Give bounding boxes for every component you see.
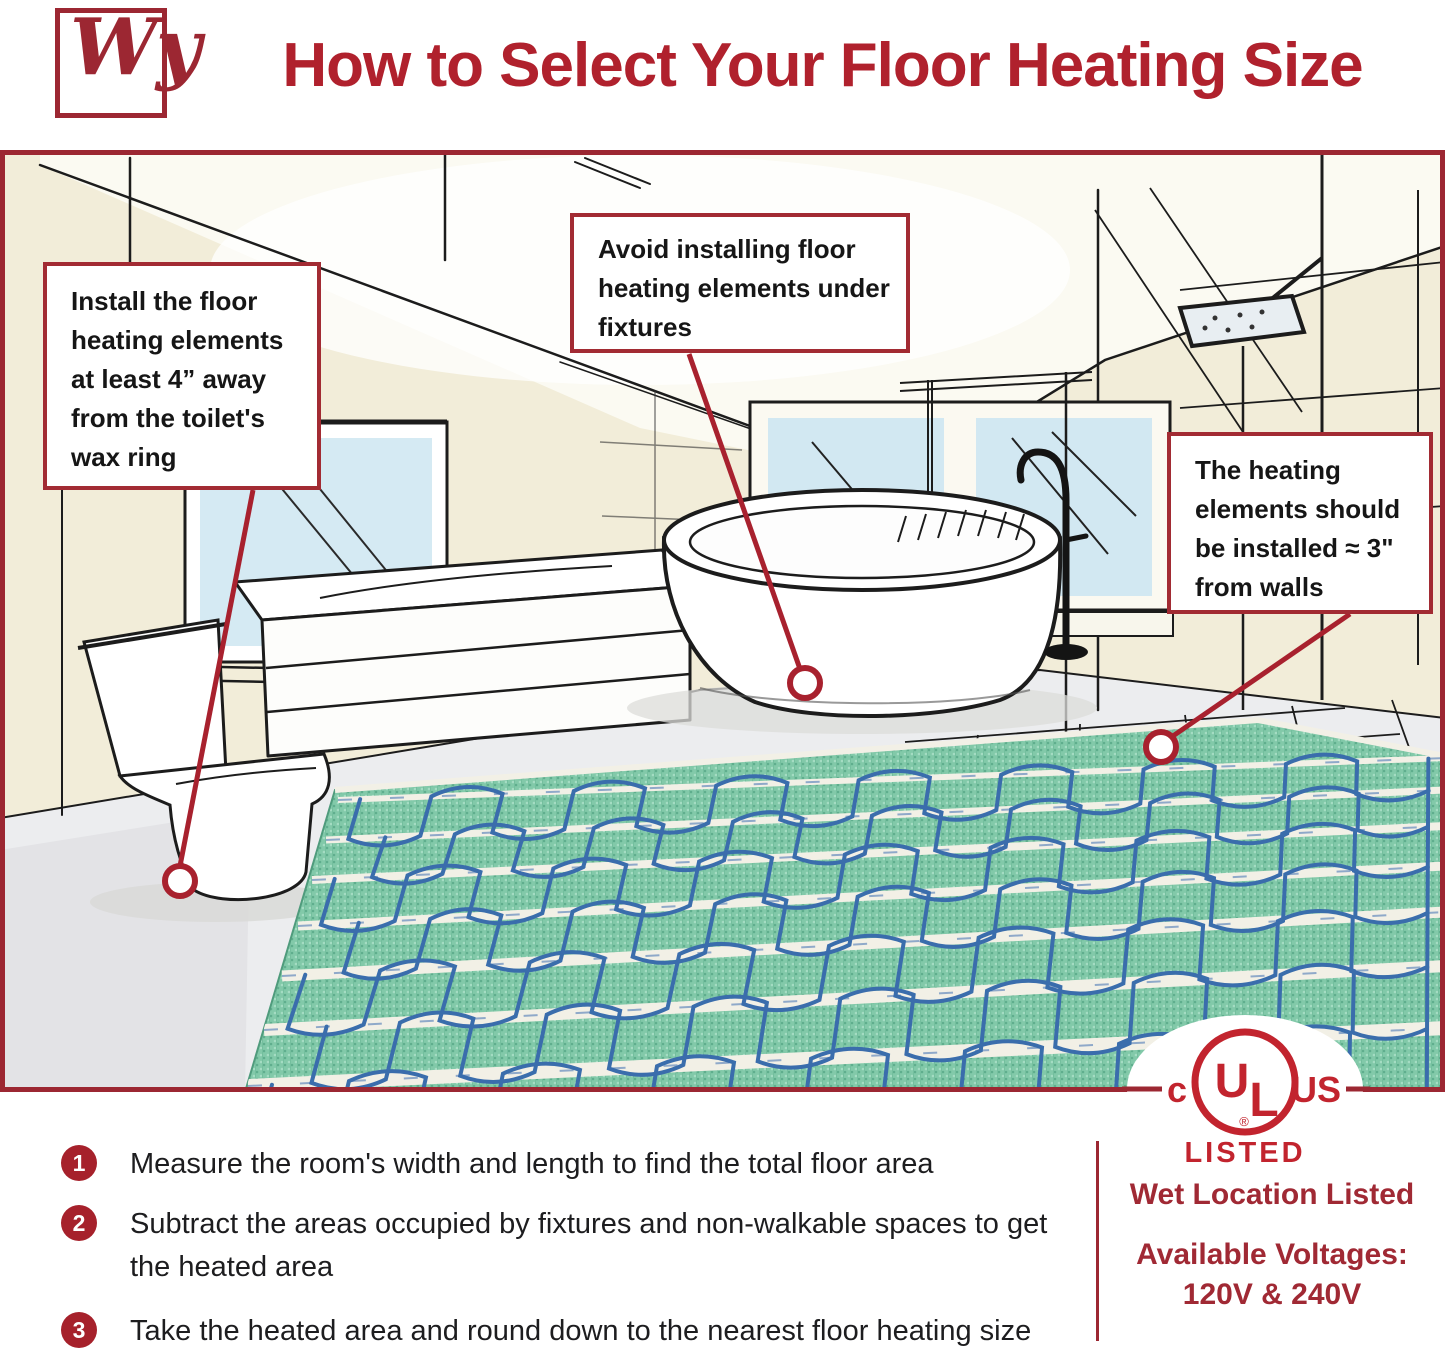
step-item-1: 1 Measure the room's width and length to…	[61, 1143, 1091, 1186]
leader-dot-tub	[790, 668, 820, 698]
callout-toilet: Install the floor heating elements at le…	[43, 262, 321, 490]
step-text: Take the heated area and round down to t…	[130, 1310, 1091, 1348]
ul-letter-l: L	[1249, 1074, 1278, 1127]
callout-fixtures: Avoid installing floor heating elements …	[570, 213, 910, 353]
step-item-2: 2 Subtract the areas occupied by fixture…	[61, 1203, 1091, 1289]
step-number-badge: 2	[61, 1205, 97, 1241]
voltages-value: 120V & 240V	[1104, 1278, 1440, 1312]
callout-walls: The heating elements should be installed…	[1167, 432, 1433, 614]
wet-location-label: Wet Location Listed	[1104, 1178, 1440, 1212]
page-title: How to Select Your Floor Heating Size	[215, 30, 1430, 101]
step-number-badge: 3	[61, 1312, 97, 1348]
infographic-page: Wy How to Select Your Floor Heating Size	[0, 0, 1445, 1348]
brand-logo: Wy	[55, 8, 167, 118]
ul-letter-u: U	[1215, 1055, 1250, 1108]
certification-info: Wet Location Listed Available Voltages: …	[1104, 1178, 1440, 1312]
leader-dot-wall	[1146, 732, 1176, 762]
ul-us-label: US	[1291, 1069, 1341, 1110]
ul-registered-icon: ®	[1239, 1114, 1249, 1129]
brand-logo-monogram: Wy	[70, 9, 201, 87]
bathtub-sketch	[627, 490, 1097, 734]
step-text: Measure the room's width and length to f…	[130, 1143, 1091, 1186]
vertical-divider	[1096, 1141, 1099, 1341]
step-number-badge: 1	[61, 1145, 97, 1181]
bench-sketch	[235, 550, 690, 756]
ul-listed-label: LISTED	[1184, 1137, 1305, 1169]
ul-c-label: c	[1167, 1069, 1187, 1110]
voltages-label: Available Voltages:	[1104, 1238, 1440, 1272]
ul-certification-mark: U L ® c US LISTED	[1120, 1002, 1370, 1177]
leader-dot-toilet	[165, 866, 195, 896]
step-text: Subtract the areas occupied by fixtures …	[130, 1203, 1091, 1289]
step-item-3: 3 Take the heated area and round down to…	[61, 1310, 1091, 1348]
